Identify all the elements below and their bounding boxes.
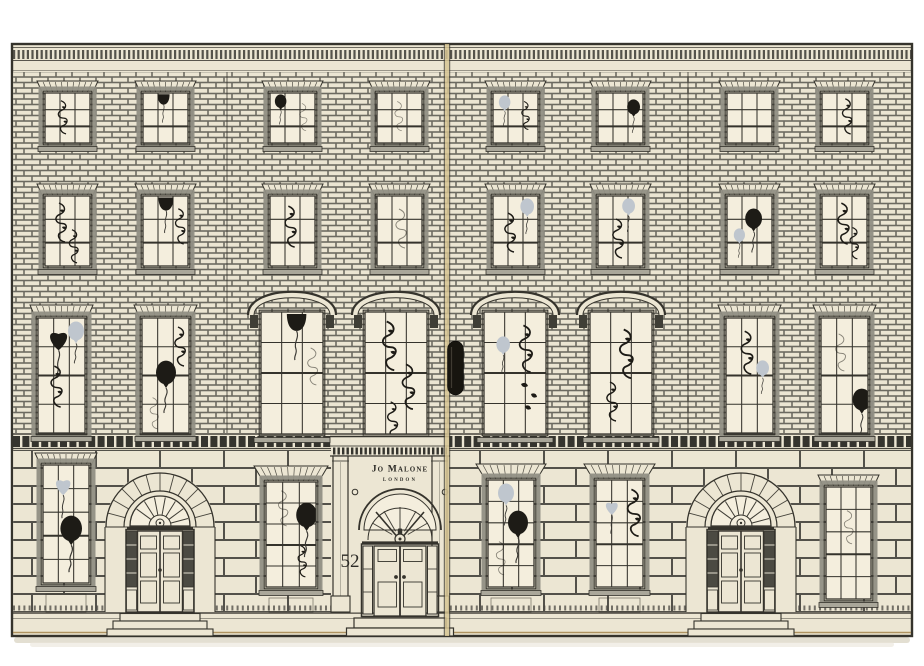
- window-piano-7: [718, 305, 781, 442]
- window-sill: [38, 147, 97, 152]
- window-piano-arch-4: [577, 292, 665, 443]
- window-sill: [486, 270, 545, 275]
- window-attic-8: [814, 81, 875, 152]
- door-sidelight: [363, 546, 373, 614]
- door-sidelight: [428, 546, 438, 614]
- window-second-7: [719, 184, 780, 275]
- window-sill: [370, 147, 429, 152]
- window-piano-arch-2: [352, 292, 440, 443]
- window-ground-4: [584, 464, 655, 612]
- window-sill: [259, 591, 323, 596]
- window-piano-1: [30, 305, 93, 442]
- window-attic-7: [719, 81, 780, 152]
- window-sill: [486, 147, 545, 152]
- building-facade: [12, 44, 912, 647]
- window-attic-4: [369, 81, 430, 152]
- window-ground-3: [476, 464, 546, 612]
- window-second-6: [590, 184, 651, 275]
- window-second-5: [485, 184, 546, 275]
- window-sill: [720, 147, 779, 152]
- door-knob: [158, 568, 162, 572]
- window-sill: [31, 437, 92, 442]
- door-step: [701, 614, 781, 622]
- window-sill: [589, 591, 650, 596]
- window-sill: [815, 270, 874, 275]
- window-sill: [814, 437, 875, 442]
- window-sill: [720, 270, 779, 275]
- door-knob: [739, 568, 743, 572]
- window-sill: [819, 603, 878, 608]
- window-sill: [477, 438, 553, 443]
- window-attic-5: [485, 81, 546, 152]
- advent-calendar-illustration: Jo Malone LONDON 52: [0, 0, 924, 666]
- window-sill: [719, 437, 780, 442]
- window-ground-5: [818, 475, 879, 608]
- window-sill: [38, 270, 97, 275]
- left-door: [105, 472, 215, 636]
- right-door: [686, 472, 796, 636]
- window-sill: [136, 147, 195, 152]
- window-second-2: [135, 184, 196, 275]
- window-sill: [254, 438, 330, 443]
- window-attic-6: [590, 81, 651, 152]
- window-attic-2: [135, 81, 196, 152]
- store-sign-city: LONDON: [383, 478, 417, 483]
- window-sill: [136, 270, 195, 275]
- window-second-3: [262, 184, 323, 275]
- door-number: 52: [341, 551, 360, 572]
- box-seam: [444, 44, 449, 636]
- window-sill: [135, 437, 196, 442]
- window-sill: [815, 147, 874, 152]
- window-attic-1: [37, 81, 98, 152]
- window-sill: [481, 591, 541, 596]
- door-step: [120, 614, 200, 622]
- product-photo: Jo Malone LONDON 52: [0, 0, 924, 666]
- store-sign-name: Jo Malone: [372, 464, 429, 475]
- window-sill: [591, 270, 650, 275]
- door-knob: [394, 575, 398, 579]
- box-clasp[interactable]: [448, 341, 464, 395]
- door-step: [354, 618, 446, 628]
- window-sill: [583, 438, 659, 443]
- window-attic-3: [262, 81, 323, 152]
- window-second-1: [37, 184, 98, 275]
- window-piano-2: [134, 305, 197, 442]
- window-sill: [370, 270, 429, 275]
- fanlight-finial: [398, 529, 402, 535]
- window-sill: [263, 147, 322, 152]
- window-piano-arch-1: [248, 292, 336, 443]
- window-piano-8: [813, 305, 876, 442]
- window-sill: [36, 587, 96, 592]
- window-ground-1: [35, 453, 97, 612]
- window-sill: [263, 270, 322, 275]
- window-piano-arch-3: [471, 292, 559, 443]
- window-second-8: [814, 184, 875, 275]
- window-sill: [591, 147, 650, 152]
- window-second-4: [369, 184, 430, 275]
